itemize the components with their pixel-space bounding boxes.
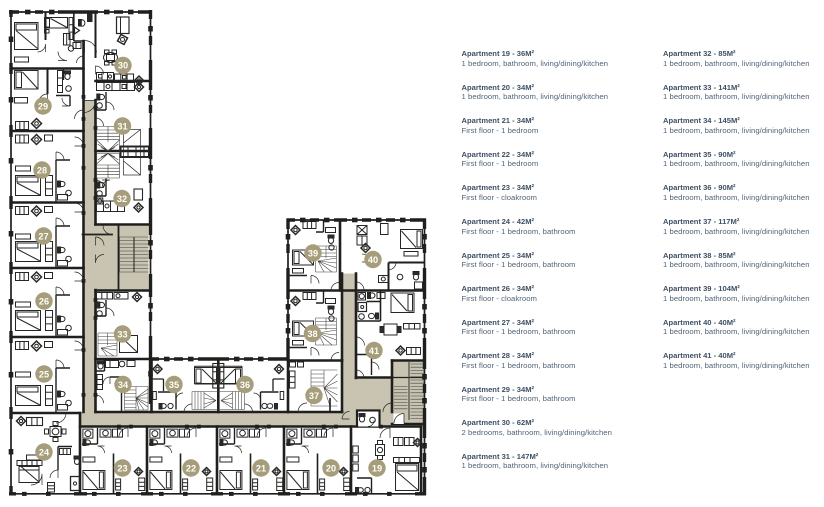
svg-text:23: 23: [117, 463, 127, 473]
svg-text:35: 35: [169, 380, 179, 390]
svg-text:28: 28: [37, 165, 47, 175]
svg-text:22: 22: [186, 463, 196, 473]
svg-text:33: 33: [117, 329, 127, 339]
svg-text:27: 27: [38, 231, 48, 241]
svg-text:29: 29: [38, 101, 48, 111]
svg-text:19: 19: [372, 463, 382, 473]
svg-text:38: 38: [307, 329, 317, 339]
svg-text:34: 34: [118, 380, 129, 390]
svg-text:32: 32: [117, 194, 127, 204]
svg-text:40: 40: [368, 255, 378, 265]
svg-text:21: 21: [256, 463, 266, 473]
svg-text:26: 26: [39, 296, 49, 306]
svg-text:20: 20: [326, 463, 336, 473]
svg-text:39: 39: [308, 248, 318, 258]
svg-text:24: 24: [39, 447, 50, 457]
svg-text:30: 30: [118, 61, 128, 71]
svg-text:37: 37: [309, 391, 319, 401]
svg-text:25: 25: [39, 369, 49, 379]
svg-text:31: 31: [117, 121, 127, 131]
svg-text:41: 41: [369, 346, 379, 356]
svg-text:36: 36: [240, 380, 250, 390]
